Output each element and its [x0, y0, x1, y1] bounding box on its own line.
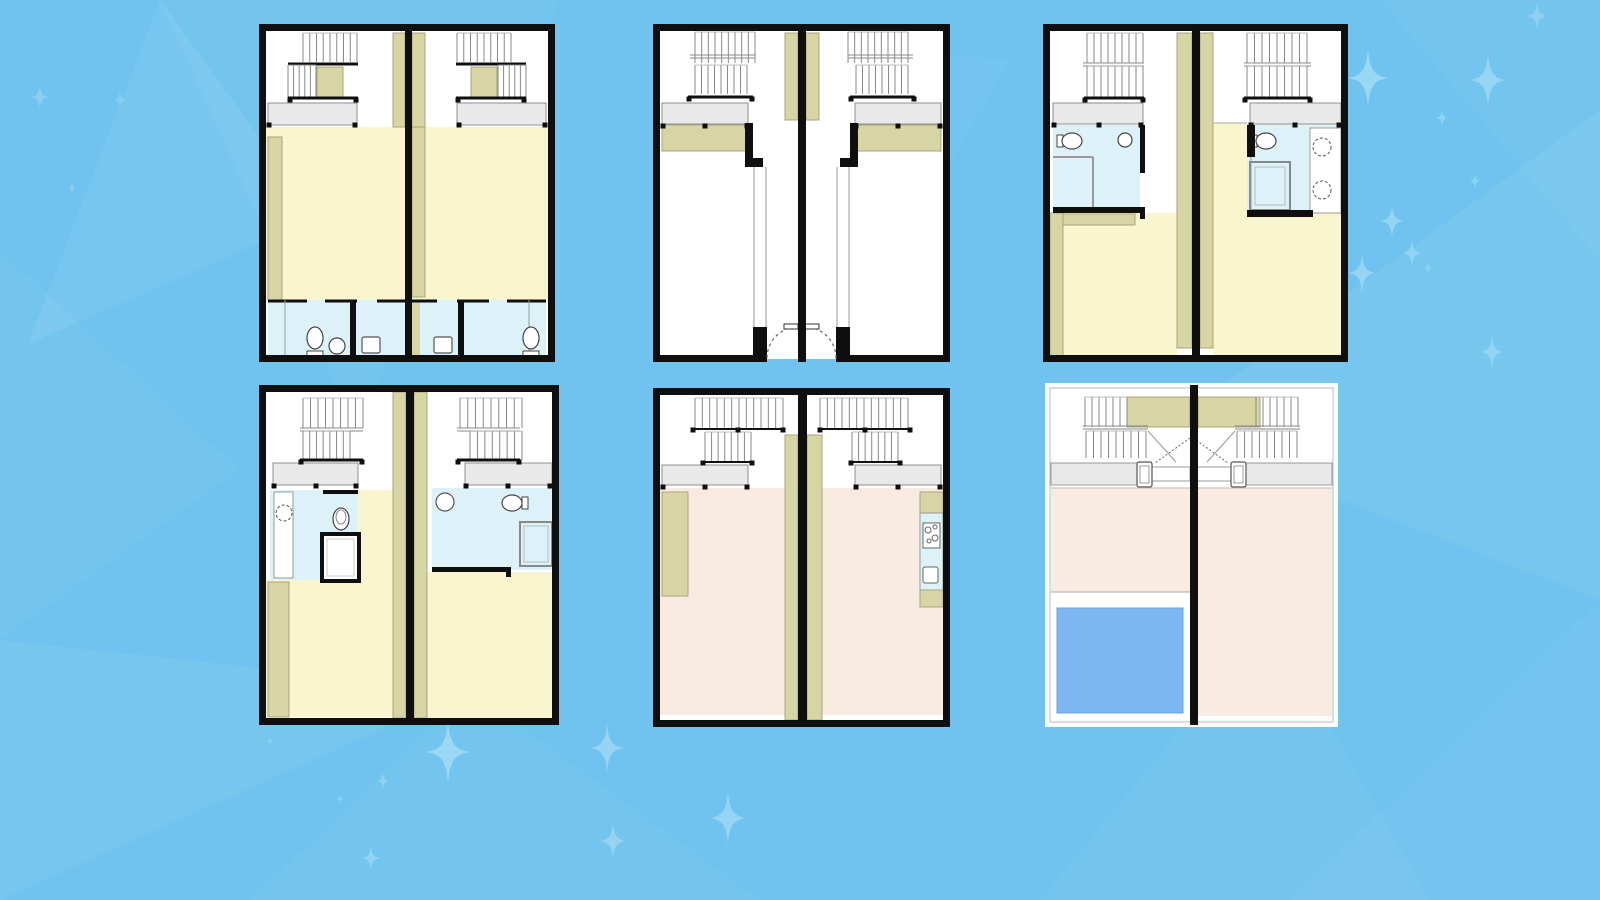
- floor-plan-bottom-right[interactable]: [1045, 383, 1338, 727]
- sparkle-icon: [710, 791, 746, 845]
- floor-plan-top-right[interactable]: [1043, 24, 1348, 362]
- sparkle-icon: [67, 181, 77, 195]
- sparkle-icon: [1348, 48, 1388, 108]
- floor-plan-top-left-drawing: [259, 24, 555, 362]
- floor-plan-top-right-drawing: [1043, 24, 1348, 362]
- floor-plan-collage: [0, 0, 1600, 900]
- floor-plan-bottom-left-drawing: [259, 385, 559, 725]
- sparkle-icon: [1436, 109, 1448, 127]
- floor-plan-bottom-center[interactable]: [653, 388, 950, 727]
- floor-plan-bottom-center-drawing: [653, 388, 950, 727]
- floor-plan-bottom-left[interactable]: [259, 385, 559, 725]
- floor-plan-top-center-drawing: [653, 24, 950, 362]
- sparkle-icon: [1469, 173, 1481, 189]
- sparkle-icon: [336, 793, 344, 805]
- sparkle-icon: [590, 723, 624, 773]
- floor-plan-top-left[interactable]: [259, 24, 555, 362]
- floor-plan-top-center[interactable]: [653, 24, 950, 362]
- sparkle-icon: [31, 84, 49, 110]
- sparkle-icon: [1380, 204, 1404, 238]
- floor-plan-bottom-right-drawing: [1045, 383, 1338, 727]
